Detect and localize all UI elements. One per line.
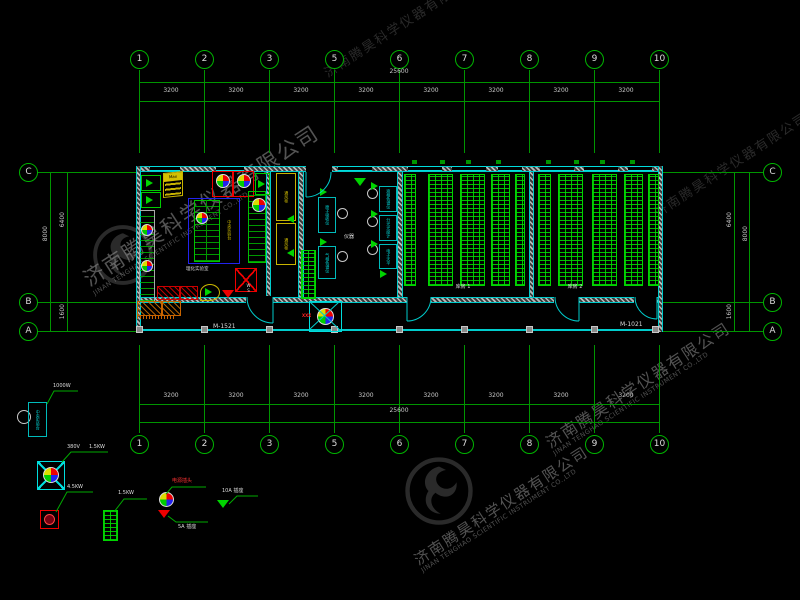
speaker-icon bbox=[371, 210, 378, 218]
axis-bubble: 2 bbox=[195, 435, 214, 454]
legend-furnace bbox=[40, 510, 59, 529]
speaker-icon bbox=[371, 240, 378, 248]
watermark-text: 济南腾昊科学仪器有限公司 JINAN TENGHAO SCIENTIFIC IN… bbox=[410, 441, 595, 574]
dimension-line bbox=[749, 172, 750, 331]
arrow-icon bbox=[258, 180, 265, 188]
bench-label: 中央实验台 bbox=[224, 204, 234, 256]
storage-rack bbox=[515, 174, 525, 286]
exhaust-fan-icon bbox=[317, 308, 334, 325]
exhaust-fan-icon bbox=[43, 467, 59, 483]
dimension-line bbox=[50, 172, 51, 331]
dim-total-bottom: 25600 bbox=[369, 407, 429, 414]
room-label: 库房 2 bbox=[560, 283, 590, 290]
axis-bubble: 2 bbox=[195, 50, 214, 69]
dim-side: 1600 bbox=[59, 304, 66, 319]
grid-line bbox=[529, 345, 530, 433]
sink-icon bbox=[141, 224, 153, 236]
stool bbox=[337, 251, 348, 262]
grid-line bbox=[204, 345, 205, 433]
column-marker bbox=[201, 326, 208, 333]
cabinet: 通风柜 bbox=[276, 173, 296, 221]
legend-bench: 中央实验台 bbox=[28, 402, 47, 437]
storage-rack bbox=[460, 174, 485, 286]
speaker-icon bbox=[287, 249, 294, 257]
exhaust-fan-icon bbox=[216, 174, 230, 188]
electric-panel bbox=[141, 175, 161, 191]
axis-bubble: 1 bbox=[130, 435, 149, 454]
window bbox=[498, 166, 522, 171]
dim-seg: 3200 bbox=[285, 87, 317, 94]
dim-seg: 3200 bbox=[480, 392, 512, 399]
legend-label: 10A 插座 bbox=[222, 487, 243, 494]
dim-side: 6400 bbox=[59, 212, 66, 227]
door-opening bbox=[634, 296, 657, 303]
axis-bubble: A bbox=[19, 322, 38, 341]
sink-icon bbox=[141, 260, 153, 272]
door-opening bbox=[306, 165, 332, 172]
grid-line bbox=[464, 345, 465, 433]
storage-rack bbox=[592, 174, 617, 286]
floor-drain-icon bbox=[222, 290, 234, 298]
central-bench bbox=[194, 200, 220, 262]
dimension-line bbox=[734, 172, 735, 331]
axis-bubble: 9 bbox=[585, 50, 604, 69]
storage-rack bbox=[301, 250, 316, 299]
ws-mark: WS bbox=[246, 283, 251, 293]
axis-bubble: 3 bbox=[260, 50, 279, 69]
arrow-icon bbox=[146, 196, 153, 204]
company-logo-icon bbox=[404, 456, 474, 526]
speaker-icon bbox=[380, 270, 387, 278]
cabinet-hatched bbox=[162, 301, 181, 316]
column-marker bbox=[266, 326, 273, 333]
legend-label: 1000W bbox=[53, 383, 71, 389]
axis-bubble: 5 bbox=[325, 50, 344, 69]
vent-tick bbox=[412, 160, 417, 164]
axis-bubble: 9 bbox=[585, 435, 604, 454]
column-marker bbox=[652, 326, 659, 333]
axis-bubble: 8 bbox=[520, 50, 539, 69]
door-tag: M-1521 bbox=[213, 323, 236, 330]
axis-bubble: B bbox=[19, 293, 38, 312]
legend-label: 4.5KW bbox=[67, 484, 83, 490]
vent-tick bbox=[496, 160, 501, 164]
wall bbox=[529, 172, 534, 297]
instrument-bench: 原子吸收仪 bbox=[318, 197, 336, 233]
power-plug-icon bbox=[159, 492, 174, 507]
hatch-strip bbox=[137, 316, 175, 319]
door-opening bbox=[246, 296, 273, 303]
cabinet-hatched bbox=[157, 286, 180, 300]
arrow-icon bbox=[205, 288, 212, 296]
ceiling-device-icon bbox=[354, 178, 366, 186]
column-marker bbox=[591, 326, 598, 333]
dim-seg: 3200 bbox=[285, 392, 317, 399]
door-opening bbox=[554, 296, 579, 303]
speaker-icon bbox=[371, 182, 378, 190]
legend-label: 380V bbox=[67, 444, 80, 450]
window bbox=[628, 166, 652, 171]
speaker-icon bbox=[287, 215, 294, 223]
socket-10a-icon bbox=[217, 500, 229, 508]
axis-bubble: C bbox=[763, 163, 782, 182]
vent-tick bbox=[574, 160, 579, 164]
axis-bubble: 6 bbox=[390, 435, 409, 454]
axis-bubble: A bbox=[763, 322, 782, 341]
dim-seg: 3200 bbox=[155, 87, 187, 94]
legend-label: 5A 插座 bbox=[178, 523, 196, 530]
window bbox=[540, 166, 574, 171]
bench-divider bbox=[206, 200, 207, 260]
legend-label: 电源插头 bbox=[172, 477, 192, 484]
axis-line bbox=[37, 331, 138, 332]
axis-bubble: 1 bbox=[130, 50, 149, 69]
dim-seg: 3200 bbox=[610, 392, 642, 399]
dim-seg: 3200 bbox=[480, 87, 512, 94]
cabinet-hatched bbox=[137, 301, 162, 316]
electric-panel bbox=[141, 192, 161, 208]
dim-seg: 3200 bbox=[415, 87, 447, 94]
storage-rack bbox=[624, 174, 643, 286]
storage-rack bbox=[538, 174, 551, 286]
grid-line bbox=[659, 345, 660, 433]
dimension-line bbox=[67, 172, 68, 331]
dim-side: 1600 bbox=[726, 304, 733, 319]
axis-line bbox=[660, 172, 763, 173]
dim-seg: 3200 bbox=[220, 392, 252, 399]
window bbox=[338, 166, 372, 171]
room-label: 库房 1 bbox=[448, 283, 478, 290]
window bbox=[452, 166, 486, 171]
axis-bubble: 5 bbox=[325, 435, 344, 454]
grid-line bbox=[269, 345, 270, 433]
grid-line bbox=[334, 345, 335, 433]
dim-seg: 3200 bbox=[545, 87, 577, 94]
dim-seg: 3200 bbox=[415, 392, 447, 399]
dimension-line bbox=[139, 82, 660, 83]
fume-hood: Max bbox=[163, 171, 183, 198]
grid-line bbox=[399, 345, 400, 433]
cabinet: 通风柜 bbox=[276, 223, 296, 265]
dim-seg: 3200 bbox=[545, 392, 577, 399]
legend-label: 1.5KW bbox=[118, 490, 134, 496]
dimension-line bbox=[139, 422, 660, 423]
door-opening bbox=[407, 296, 431, 303]
axis-bubble: 7 bbox=[455, 435, 474, 454]
room-label: 理化实验室 bbox=[186, 266, 209, 272]
stool bbox=[337, 208, 348, 219]
dimension-line bbox=[139, 101, 660, 102]
storage-rack bbox=[491, 174, 510, 286]
fume-hood-stripes bbox=[165, 181, 181, 196]
axis-bubble: 10 bbox=[650, 50, 669, 69]
grid-line bbox=[139, 345, 140, 433]
equipment-item bbox=[200, 284, 220, 301]
shaft-label: XXX bbox=[302, 313, 311, 318]
window bbox=[584, 166, 618, 171]
axis-bubble: 6 bbox=[390, 50, 409, 69]
instrument-bench: 分光光度计 bbox=[379, 215, 397, 241]
axis-bubble: 7 bbox=[455, 50, 474, 69]
wall bbox=[397, 172, 403, 297]
cad-floor-plan-canvas: 济南腾昊科学仪器有限公司 JINAN TENGHAO SCIENTIFIC IN… bbox=[0, 0, 800, 600]
axis-bubble: 3 bbox=[260, 435, 279, 454]
door-tag: M-1021 bbox=[620, 321, 643, 328]
vent-tick bbox=[546, 160, 551, 164]
grid-line bbox=[594, 345, 595, 433]
socket-5a-icon bbox=[158, 510, 170, 518]
dim-seg: 3200 bbox=[155, 392, 187, 399]
legend-rack bbox=[103, 510, 118, 541]
instrument-bench: 气相色谱仪 bbox=[318, 246, 336, 279]
furnace-core-icon bbox=[44, 514, 55, 525]
dim-side: 6400 bbox=[726, 212, 733, 227]
legend-label: 1.5KW bbox=[89, 444, 105, 450]
arrow-icon bbox=[146, 179, 153, 187]
axis-line bbox=[660, 302, 763, 303]
dim-seg: 3200 bbox=[610, 87, 642, 94]
cabinet-hatched bbox=[180, 286, 198, 300]
exhaust-fan-icon bbox=[237, 174, 251, 188]
column-marker bbox=[136, 326, 143, 333]
vent-tick bbox=[440, 160, 445, 164]
dimension-line bbox=[139, 404, 660, 405]
storage-rack bbox=[404, 174, 416, 286]
axis-bubble: 10 bbox=[650, 435, 669, 454]
instrument-bench: 液相色谱仪 bbox=[379, 186, 397, 212]
vent-tick bbox=[630, 160, 635, 164]
axis-bubble: B bbox=[763, 293, 782, 312]
column-marker bbox=[396, 326, 403, 333]
room-label: 仪器 bbox=[344, 233, 354, 240]
dim-seg: 3200 bbox=[350, 87, 382, 94]
axis-bubble: C bbox=[19, 163, 38, 182]
dim-seg: 3200 bbox=[220, 87, 252, 94]
window bbox=[408, 166, 442, 171]
column-marker bbox=[526, 326, 533, 333]
axis-bubble: 8 bbox=[520, 435, 539, 454]
speaker-icon bbox=[320, 188, 327, 196]
vent-tick bbox=[466, 160, 471, 164]
window bbox=[150, 166, 180, 171]
dim-side: 8000 bbox=[42, 226, 49, 241]
axis-line bbox=[37, 302, 138, 303]
vent-tick bbox=[600, 160, 605, 164]
dim-seg: 3200 bbox=[350, 392, 382, 399]
column-marker bbox=[461, 326, 468, 333]
dim-total-top: 25600 bbox=[369, 68, 429, 75]
watermark-text: 济南腾昊科学仪器有限公司 JINAN TENGHAO SCIENTIFIC IN… bbox=[540, 315, 737, 457]
axis-line bbox=[37, 172, 138, 173]
storage-rack bbox=[558, 174, 583, 286]
dim-side: 8000 bbox=[742, 226, 749, 241]
storage-rack bbox=[428, 174, 453, 286]
exhaust-fan-icon bbox=[252, 198, 266, 212]
storage-rack bbox=[648, 174, 659, 286]
sink-icon bbox=[196, 212, 208, 224]
instrument-bench: 电子天平 bbox=[379, 244, 397, 269]
wash-station bbox=[212, 171, 233, 197]
axis-line bbox=[660, 331, 763, 332]
speaker-icon bbox=[320, 238, 327, 246]
